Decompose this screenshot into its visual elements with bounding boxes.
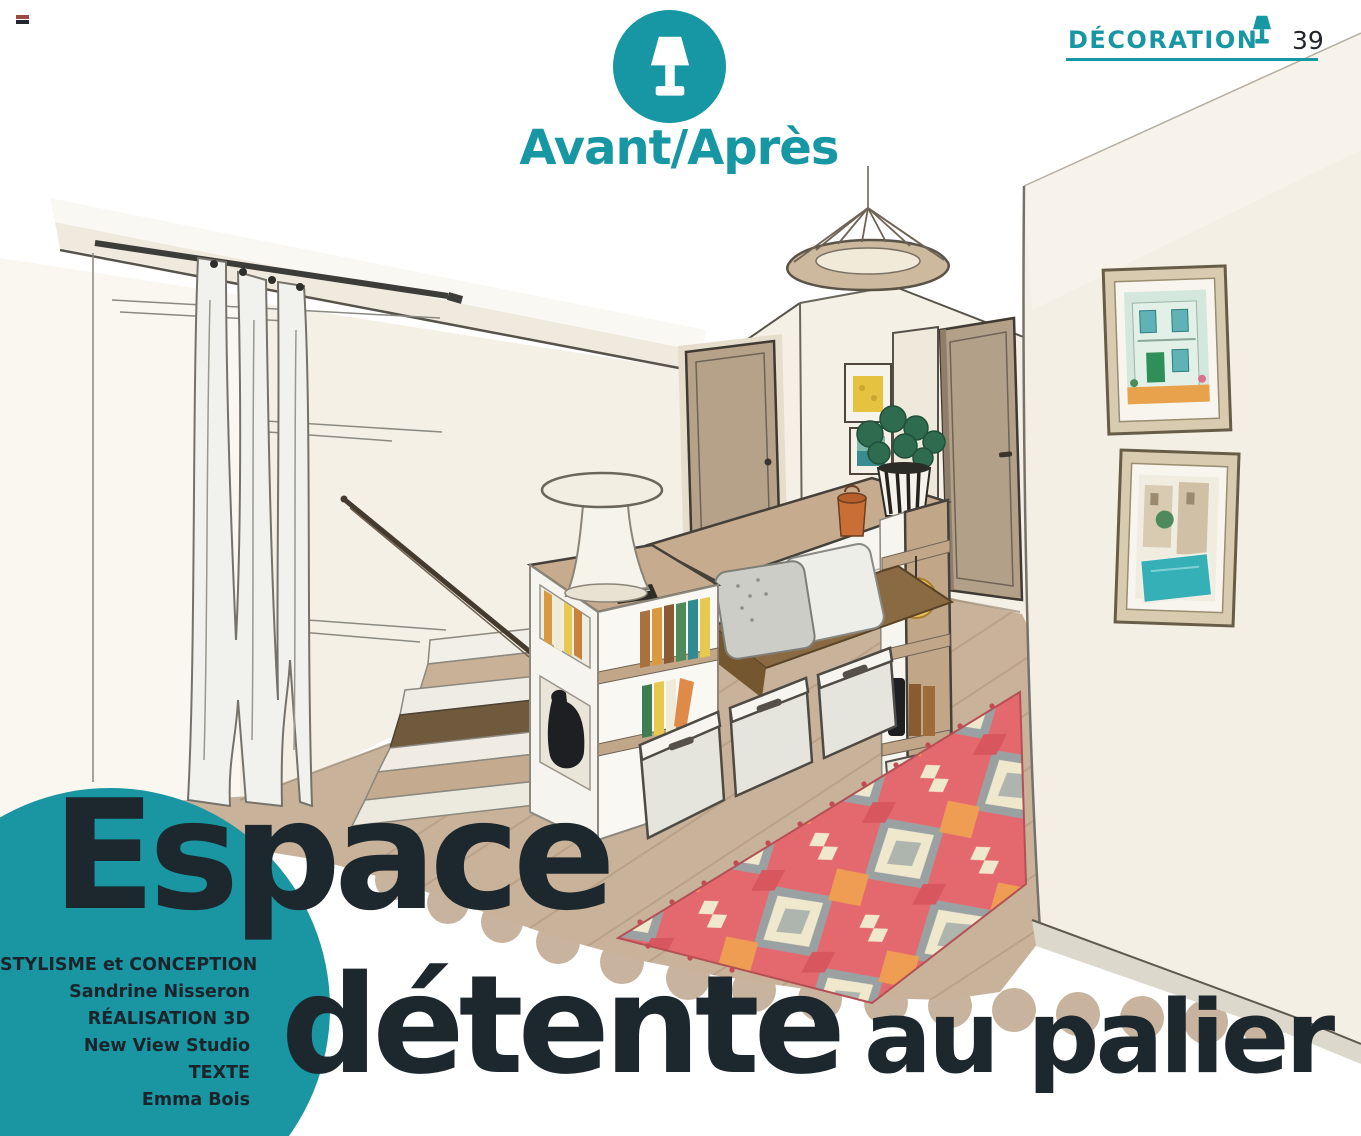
credit-role: STYLISME et CONCEPTION xyxy=(0,952,250,979)
credit-name: Emma Bois xyxy=(0,1087,250,1114)
picture-frame-pool xyxy=(1115,450,1239,626)
credit-name: New View Studio xyxy=(0,1033,250,1060)
headline-word-espace: Espace xyxy=(52,780,609,932)
headline-line-2: détenteau palier xyxy=(281,958,1331,1094)
section-label: DÉCORATION xyxy=(1068,26,1258,54)
right-wall xyxy=(1024,33,1361,1064)
section-header: DÉCORATION 39 xyxy=(1064,10,1344,70)
magazine-page: Avant/Après DÉCORATION 39 STYLISME et CO… xyxy=(0,0,1361,1136)
brand-name: Avant/Après xyxy=(519,120,838,176)
pendant-lamp xyxy=(787,166,948,290)
credit-role: TEXTE xyxy=(0,1060,250,1087)
lamp-icon xyxy=(638,32,702,102)
picture-frame-house xyxy=(1103,266,1231,434)
credits-block: STYLISME et CONCEPTION Sandrine Nisseron… xyxy=(0,952,250,1114)
headline-word-detente: détente xyxy=(281,947,840,1105)
credit-role: RÉALISATION 3D xyxy=(0,1006,250,1033)
page-number: 39 xyxy=(1292,26,1324,55)
brand-logo xyxy=(613,10,726,123)
headline-word-au-palier: au palier xyxy=(864,978,1331,1096)
section-underline xyxy=(1066,58,1318,61)
lamp-icon xyxy=(1247,12,1277,52)
credit-name: Sandrine Nisseron xyxy=(0,979,250,1006)
